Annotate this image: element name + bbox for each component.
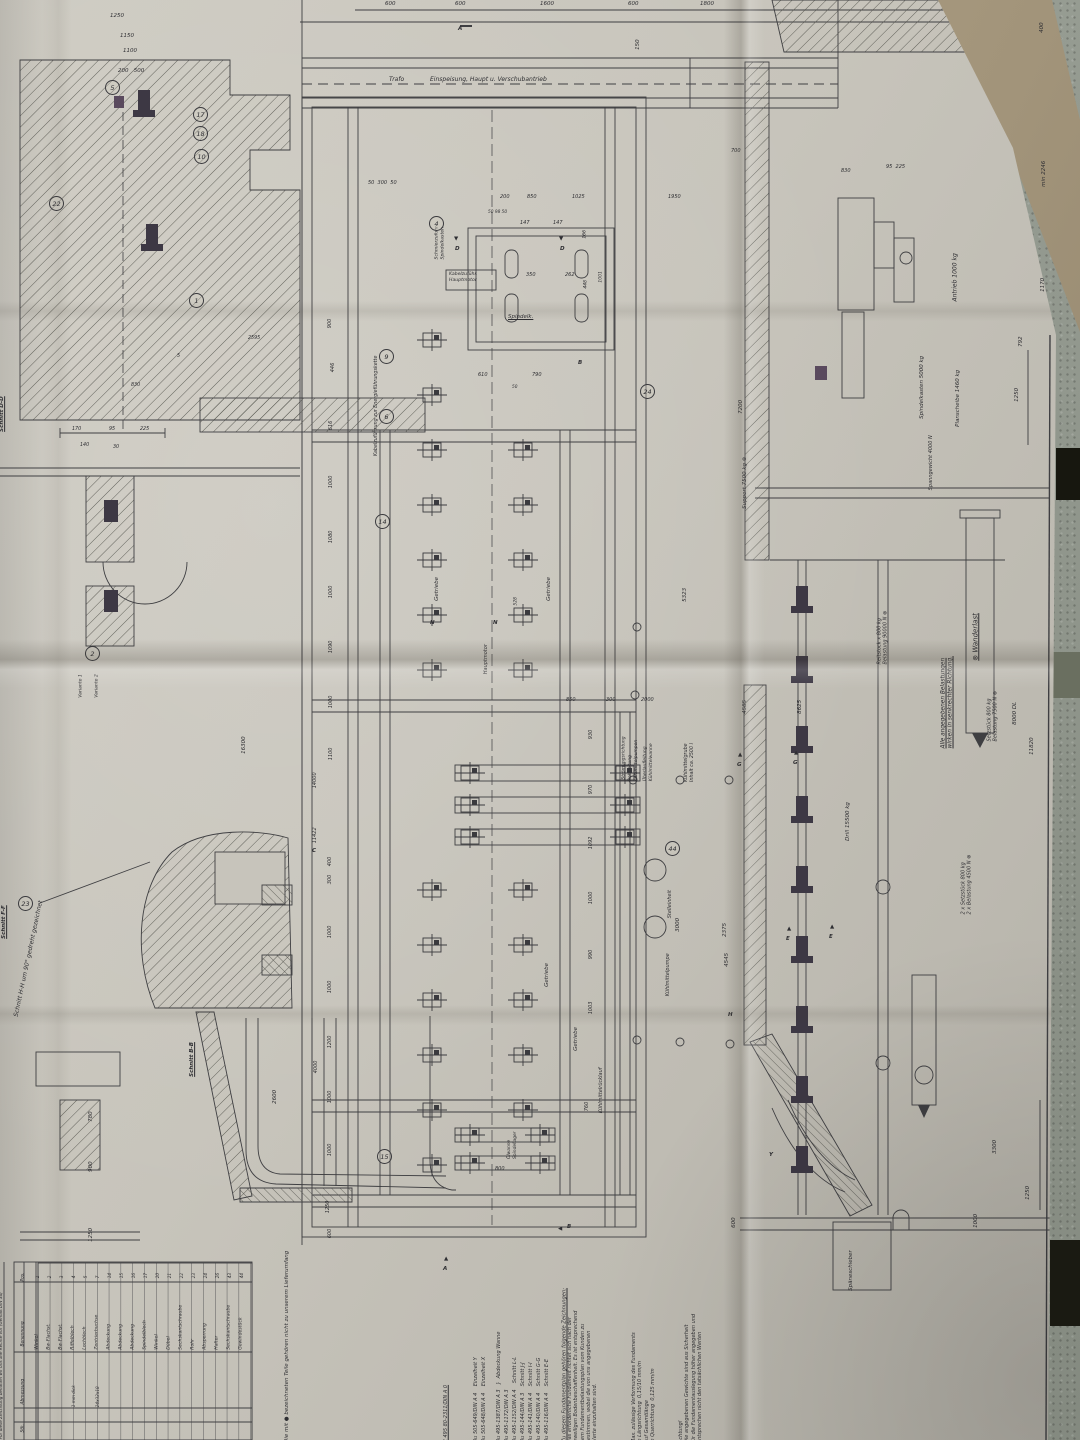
dim-tl-1: 1150 <box>120 33 134 40</box>
getriebe-label-1: Getriebe <box>434 577 441 601</box>
section-title-bb: Schnitt B-B <box>189 1042 196 1077</box>
note-verformung: Max. zulässige Verformung des Fundaments… <box>631 1332 656 1440</box>
dim-top-3: 600 <box>628 1 639 8</box>
drawing-list-item-6: Bu 495-1387/DIN A 3 } Abdeckung Wanne <box>496 1332 502 1440</box>
dim-lc-0: 900 <box>327 319 333 329</box>
marker-d-1: D <box>455 246 460 253</box>
parts-row-pos: 3 <box>59 1276 64 1279</box>
parts-row-name: Bw-Flachst. <box>58 1323 64 1349</box>
note-achtung: Achtung! Die angegebenen Gewichte sind a… <box>678 1314 703 1440</box>
parts-row-name: Riffelblech <box>70 1325 76 1349</box>
marker-b-bottom-arrow: ◀ <box>558 1226 562 1233</box>
dim-le-10: 350 <box>0 320 2 329</box>
dim-rc-6: 1092 <box>588 837 594 850</box>
dim-m-27: 780 <box>88 1111 95 1122</box>
spindelkasten-weight: Spindelkasten 5000 kg <box>919 356 926 419</box>
dim-tl-2: 1100 <box>123 48 137 55</box>
dim-dd-7: 2595 <box>248 336 260 342</box>
dim-pt-4: 1950 <box>668 194 681 200</box>
ruecklauf-label: Kühlmittelrücklauf <box>598 1067 604 1113</box>
dim-m-14: 700 <box>731 148 741 154</box>
dim-le-8: 573 <box>0 261 2 270</box>
dim-tl-0: 1250 <box>110 13 124 20</box>
support-weight: Support 7500 kg ⊗ <box>742 457 749 509</box>
dim-lc-5: 1000 <box>328 586 334 599</box>
planscheibe-weight: Planscheibe 1460 kg <box>955 370 962 427</box>
marker-y: Y <box>769 1152 773 1159</box>
dim-lc-4: 1080 <box>328 531 334 544</box>
drawing-list-item-5: Bu 495-1172/DIN A 3 <box>504 1389 510 1440</box>
parts-row-name: Lochblech <box>82 1326 88 1349</box>
dim-m-18-underflap: min 2246 <box>1041 161 1048 187</box>
schmier-label: Schmierzufuhr Spindelkasten <box>435 226 446 259</box>
dim-m-4: 4585 <box>742 700 749 714</box>
dim-dd-5: 830 <box>131 383 140 389</box>
dim-m-19: 792 <box>1018 336 1025 347</box>
dim-le-5: 300 <box>0 153 2 162</box>
marker-e-2: E <box>829 934 833 941</box>
parts-row-name: Sechskantschraube <box>226 1305 232 1350</box>
balloon-18: 18 <box>193 126 208 141</box>
balloon-17: 17 <box>193 107 208 122</box>
note-parts: Die mit ● bezeichneten Teile gehören nic… <box>284 1251 291 1440</box>
balloon-9: 9 <box>379 349 394 364</box>
marker-n-1: N <box>430 620 435 627</box>
parts-row-name: Abdeckung <box>130 1324 136 1350</box>
marker-b-bottom: B <box>567 1224 571 1231</box>
dim-lc-14: 1000 <box>327 981 333 994</box>
section-title-dd: Schnitt D-D <box>0 396 6 432</box>
dim-m-13: 150 <box>635 39 642 50</box>
marker-g-2: G <box>793 760 798 767</box>
parts-row-name: Spindelblech <box>142 1320 148 1350</box>
dim-m-23: 1000 <box>973 1214 980 1228</box>
dim-m-28: 900 <box>88 1161 95 1172</box>
drawing-list-item-8: Bu 505-649/DIN A 4 Einzelheit Y <box>473 1357 479 1440</box>
dim-rc-9: 1003 <box>588 1002 594 1015</box>
variante-1-label: Variante 1 <box>78 674 84 698</box>
marker-e-arrow-2: ▲ <box>830 924 834 931</box>
setzstueck-load: Setzstück 800 kg Belastung 7500 N ⊗ <box>987 691 1000 741</box>
marker-e-1: E <box>786 936 790 943</box>
drawing-list-item-9: E 495 80-2311/DIN A 0 <box>443 1385 449 1440</box>
marker-b-mid: B <box>578 360 582 367</box>
dim-m-11: 8625 <box>797 700 804 714</box>
balloon-5: 5 <box>105 80 120 95</box>
balloon-15: 15 <box>377 1149 392 1164</box>
balloon-4: 4 <box>429 216 444 231</box>
marker-d-2: D <box>560 246 565 253</box>
getriebe-label-2: Getriebe <box>546 577 553 601</box>
parts-row-name: Dübel <box>166 1336 172 1349</box>
dim-lc-19: 1250 <box>325 1201 331 1214</box>
parts-row-pos: 15 <box>119 1273 124 1278</box>
marker-d-arrow-2: ▼ <box>559 236 563 243</box>
parts-row-pos: 26 <box>215 1273 220 1278</box>
kabel-kette-label: Kabelzuführung zur Energieführungskette <box>374 356 380 456</box>
rohrleitung-label: Rohrleitung Kühlmittelpumpen <box>628 740 639 782</box>
dim-lc-3: 1000 <box>328 476 334 489</box>
drawing-list-item-7: Bu 505-648/DIN A 4 Einzelheit X <box>481 1357 487 1440</box>
marker-e-arrow-1: ▲ <box>787 926 791 933</box>
balloon-1: 1 <box>189 293 204 308</box>
dim-dd-0: 170 <box>72 427 81 433</box>
dim-lc-18: 1000 <box>327 1144 333 1157</box>
dim-le-1: 258 <box>0 85 2 94</box>
dim-lc-15: 1200 <box>327 1036 333 1049</box>
dim-m-3: 5323 <box>682 588 689 602</box>
parts-row-pos: 16 <box>131 1273 136 1278</box>
setzstueck2-load: 2 x Setzstück 800 kg 2 x Belastung 4500 … <box>961 855 974 915</box>
dim-m-1: 300 <box>606 697 616 703</box>
parts-row-name: Bw-Flachst. <box>46 1323 52 1349</box>
dim-tl-3: 200 500 <box>118 68 144 75</box>
dim-m-15: 830 <box>841 168 851 174</box>
parts-row-pos: 44 <box>239 1273 244 1278</box>
parts-row-name: Abdeckung <box>106 1324 112 1350</box>
marker-g-arrow-1: ▲ <box>738 752 742 759</box>
dim-le-13: 303 <box>0 392 2 401</box>
marker-a-bottom: A <box>443 1266 447 1273</box>
dim-rc-3: 166 <box>582 230 588 239</box>
getriebe-label-3: Getriebe <box>544 963 551 987</box>
parts-row-name: Rohr <box>190 1339 196 1350</box>
parts-row-name: Absperrung <box>202 1323 208 1350</box>
parts-row-name: Winkel <box>34 1334 40 1350</box>
variante-2-label: Variante 2 <box>94 674 100 698</box>
photo-of-blueprint: Trafo Einspeisung, Haupt u. Verschubantr… <box>0 0 1080 1440</box>
dim-m-9: 800 <box>495 1166 505 1172</box>
note-rights: Für diese Zeichnung behalten wir uns all… <box>0 1292 3 1439</box>
stelleinheit-label: Stelleinheit <box>667 890 673 918</box>
dim-le-12: 400 <box>0 367 2 376</box>
balloon-44: 44 <box>665 841 680 856</box>
marker-g-1: G <box>737 762 742 769</box>
parts-row-name: Halter <box>214 1336 220 1350</box>
note-fundament: Das erforderliche Fundament richtet sich… <box>567 1311 598 1440</box>
dim-lc-8: 1100 <box>328 748 334 761</box>
dim-rc-7: 1000 <box>588 892 594 905</box>
dim-rc-5: 970 <box>588 785 594 795</box>
spindel-label: Spindelk. <box>508 314 533 321</box>
dim-pt-7: 147 <box>553 220 563 226</box>
parts-row-pos: 2 <box>47 1276 52 1279</box>
dim-dd-4: 30 <box>113 445 119 451</box>
table-shadow-band <box>1052 652 1080 698</box>
dim-m-20: 1250 <box>1014 388 1021 402</box>
getriebe-label-4: Getriebe <box>573 1027 580 1051</box>
marker-a-bottom-arrow: ▲ <box>444 1256 448 1263</box>
balloon-14: 14 <box>375 514 390 529</box>
parts-row-pos: 14 <box>107 1273 112 1278</box>
dim-le-7: 533 <box>0 243 2 252</box>
parts-header-pos: Pos. <box>21 1272 27 1281</box>
dim-m-25: 11820 <box>1029 737 1036 755</box>
dim-rc-0: 528 <box>513 597 519 606</box>
drawing-linework <box>0 0 1080 1440</box>
dim-pt-11: 790 <box>532 372 542 378</box>
balloon-2: 2 <box>85 646 100 661</box>
dim-le-3: 190 <box>0 119 2 128</box>
parts-row-pos: 1 <box>35 1276 40 1279</box>
parts-row-dim: 1 mm dick <box>71 1385 76 1407</box>
drawing-list-item-1: Bu 495-140/DIN A 4 Schnitt G-G <box>536 1358 542 1440</box>
dim-m-5: 2375 <box>722 923 729 937</box>
dim-pt-1: 200 <box>500 194 510 200</box>
dim-m-8: 2600 <box>272 1090 279 1104</box>
dim-lc-2: 616 <box>328 421 334 431</box>
section-title-ff: Schnitt F-F <box>1 905 8 939</box>
marker-c: C <box>312 848 316 855</box>
parts-row-pos: 7 <box>95 1276 100 1279</box>
dim-rc-2: 448 <box>583 280 589 289</box>
dim-m-17-underflap: 1170 <box>1040 278 1047 292</box>
marker-a-top: A <box>458 26 462 33</box>
dim-dd-8: 143 <box>0 482 2 491</box>
parts-row-pos: 5 <box>83 1276 88 1279</box>
drawing-list-item-4: Bu 495-1152/DIN A 4 Schnitt L-L <box>512 1357 518 1440</box>
balloon-10: 10 <box>194 149 209 164</box>
dim-lc-6: 1090 <box>328 641 334 654</box>
trafo-cell-label: Trafo <box>389 76 404 84</box>
parts-row-name: Abdeckung <box>118 1324 124 1350</box>
dim-dd-3: 140 <box>80 443 89 449</box>
dim-m-26-underflap: 400 <box>1039 22 1046 33</box>
marker-h: H <box>728 1012 733 1019</box>
parts-header-qty: Stk. <box>21 1424 27 1432</box>
feed-cell-label: Einspeisung, Haupt u. Verschubantrieb <box>430 76 547 84</box>
dim-top-2: 1600 <box>540 1 554 8</box>
oelwanne-label: Ölwanne Spindellager <box>507 1132 518 1160</box>
marker-n-2: N <box>493 620 498 627</box>
dim-pt-3: 1025 <box>572 194 585 200</box>
parts-row-dim: 24x32x18 <box>95 1386 100 1407</box>
marker-g-arrow-2: ▲ <box>794 750 798 757</box>
dim-top-1: 600 <box>455 1 466 8</box>
dim-lc-12: 300 <box>327 875 333 885</box>
dim-m-12: 4545 <box>724 953 731 967</box>
drawing-list-intro: Zu diesem Fundamentplan gehören folgende… <box>562 1288 569 1440</box>
antrieb-weight: Antrieb 1000 kg <box>952 253 960 301</box>
dim-lc-16: 4000 <box>313 1061 319 1074</box>
dim-m-10: 1250 <box>1025 1186 1032 1200</box>
dim-lc-7: 1000 <box>328 696 334 709</box>
dim-lc-1: 446 <box>330 363 336 373</box>
hauptmotor-label: Hauptmotor <box>483 644 489 674</box>
dim-m-2: 2000 <box>641 697 654 703</box>
spanngewicht-label: Spanngewicht 4000 N <box>928 435 934 490</box>
parts-row-pos: 24 <box>203 1273 208 1278</box>
load-direction-note: Alle angegebenen Belastungen wirken in s… <box>941 656 955 748</box>
dim-lc-13: 1000 <box>327 926 333 939</box>
dim-le-11: 140 <box>0 342 2 351</box>
dim-top-4: 1800 <box>700 1 714 8</box>
dim-rc-8: 990 <box>588 950 594 960</box>
dim-pt-12: 50 <box>512 385 517 390</box>
reitstock-load: Reitstock x 800 kg Belastung 90000 N ⊗ <box>877 611 890 665</box>
kuehlmittelgrube-label: Kühlmittelgrube Inhalt ca. 2500 l <box>684 743 696 782</box>
dim-m-0: 850 <box>566 697 576 703</box>
parts-row-pos: 4 <box>71 1276 76 1279</box>
dim-dd-10: 143 <box>0 615 2 624</box>
parts-row-name: Winkel <box>154 1334 160 1350</box>
drill-weight: Drill 15500 kg <box>845 802 852 841</box>
balloon-22: 22 <box>49 196 64 211</box>
parts-row-pos: 22 <box>179 1273 184 1278</box>
parts-row-pos: 17 <box>143 1273 148 1278</box>
dim-dd-6: 5 <box>177 354 180 360</box>
stroemung-label: Strömungsrichtung <box>621 736 627 779</box>
dim-pt-8: 350 <box>526 272 536 278</box>
dim-top-0: 600 <box>385 1 396 8</box>
dim-pt-6: 147 <box>520 220 530 226</box>
dim-m-22: 3300 <box>992 1140 999 1154</box>
parts-row-pos: 20 <box>155 1273 160 1278</box>
wanderlast-label: ⊗ Wanderlast <box>971 613 980 661</box>
dim-le-4: 258 <box>0 136 2 145</box>
dim-pt-2: 850 <box>527 194 537 200</box>
dim-le-6: 856 <box>0 195 2 204</box>
parts-row-pos: 43 <box>227 1273 232 1278</box>
table-dark-band-lower <box>1050 1240 1080 1326</box>
balloon-24: 24 <box>640 384 655 399</box>
dim-lc-17: 1000 <box>327 1091 333 1104</box>
dim-dd-2: 225 <box>140 427 149 433</box>
parts-header-name: Benennung <box>21 1321 27 1346</box>
dim-m-24: 600 <box>731 1217 738 1228</box>
dim-pt-0: 50 300 50 <box>368 180 397 186</box>
balloon-23: 23 <box>18 896 33 911</box>
dim-m-16: 95 225 <box>886 164 905 170</box>
drawing-list-item-2: Bu 495-141/DIN A 4 Schnitt I-I <box>528 1362 534 1440</box>
drawing-list-item-0: Bu 495-116/DIN A 4 Schnitt E-E <box>544 1359 550 1440</box>
dim-m-21: 7200 <box>738 400 745 414</box>
ueberlauf-label: Überlaufleitung Kühlmittelwanne <box>643 743 654 781</box>
parts-row-name: Sechskantschraube <box>178 1305 184 1350</box>
dim-pt-5: 50 98 50 <box>488 210 507 215</box>
balloon-6: 6 <box>379 409 394 424</box>
dim-rc-4: 930 <box>588 730 594 740</box>
dim-lc-10: 11422 <box>312 827 318 843</box>
drawing-list-item-3: Bu 495-144/DIN A 3 Schnitt J-J <box>520 1362 526 1440</box>
parts-row-pos: 21 <box>167 1273 172 1278</box>
blueprint-paper: Trafo Einspeisung, Haupt u. Verschubantr… <box>0 0 1080 1440</box>
dim-rc-10: 760 <box>584 1102 590 1112</box>
kabel-hauptmotor-label: Kabelzuführ. Hauptmotor <box>449 272 477 283</box>
dim-le-9: 700 <box>0 286 2 295</box>
dim-le-0: 160 <box>0 39 2 48</box>
dauerlast-label: 8000 DL <box>1012 702 1019 725</box>
dim-lc-20: 600 <box>327 1229 333 1239</box>
dim-lc-11: 400 <box>327 857 333 867</box>
dim-m-29: 1250 <box>88 1228 95 1242</box>
dim-le-2: 100 <box>0 102 2 111</box>
dim-rc-1: 1001 <box>598 271 604 282</box>
dim-pt-9: 262 <box>565 272 575 278</box>
dim-m-7: 16300 <box>241 736 248 754</box>
dim-pt-10: 610 <box>478 372 488 378</box>
pumpe-label: Kühlmittelpumpe <box>665 953 671 996</box>
table-dark-band-upper <box>1056 448 1080 500</box>
parts-row-name: Zentrierbuchse <box>94 1315 100 1350</box>
dim-lc-9: 14000 <box>312 772 318 788</box>
parts-row-pos: 23 <box>191 1273 196 1278</box>
marker-d-arrow-1: ▼ <box>454 236 458 243</box>
dim-m-6: 3000 <box>675 918 682 932</box>
dim-dd-1: 95 <box>109 427 115 433</box>
parts-row-name: Gewindestück <box>238 1317 244 1349</box>
dim-dd-9: 156 <box>0 555 2 564</box>
parts-header-dim: Abmessung <box>21 1379 27 1405</box>
spaeneschieber-label: Späneschieber <box>848 1250 855 1291</box>
